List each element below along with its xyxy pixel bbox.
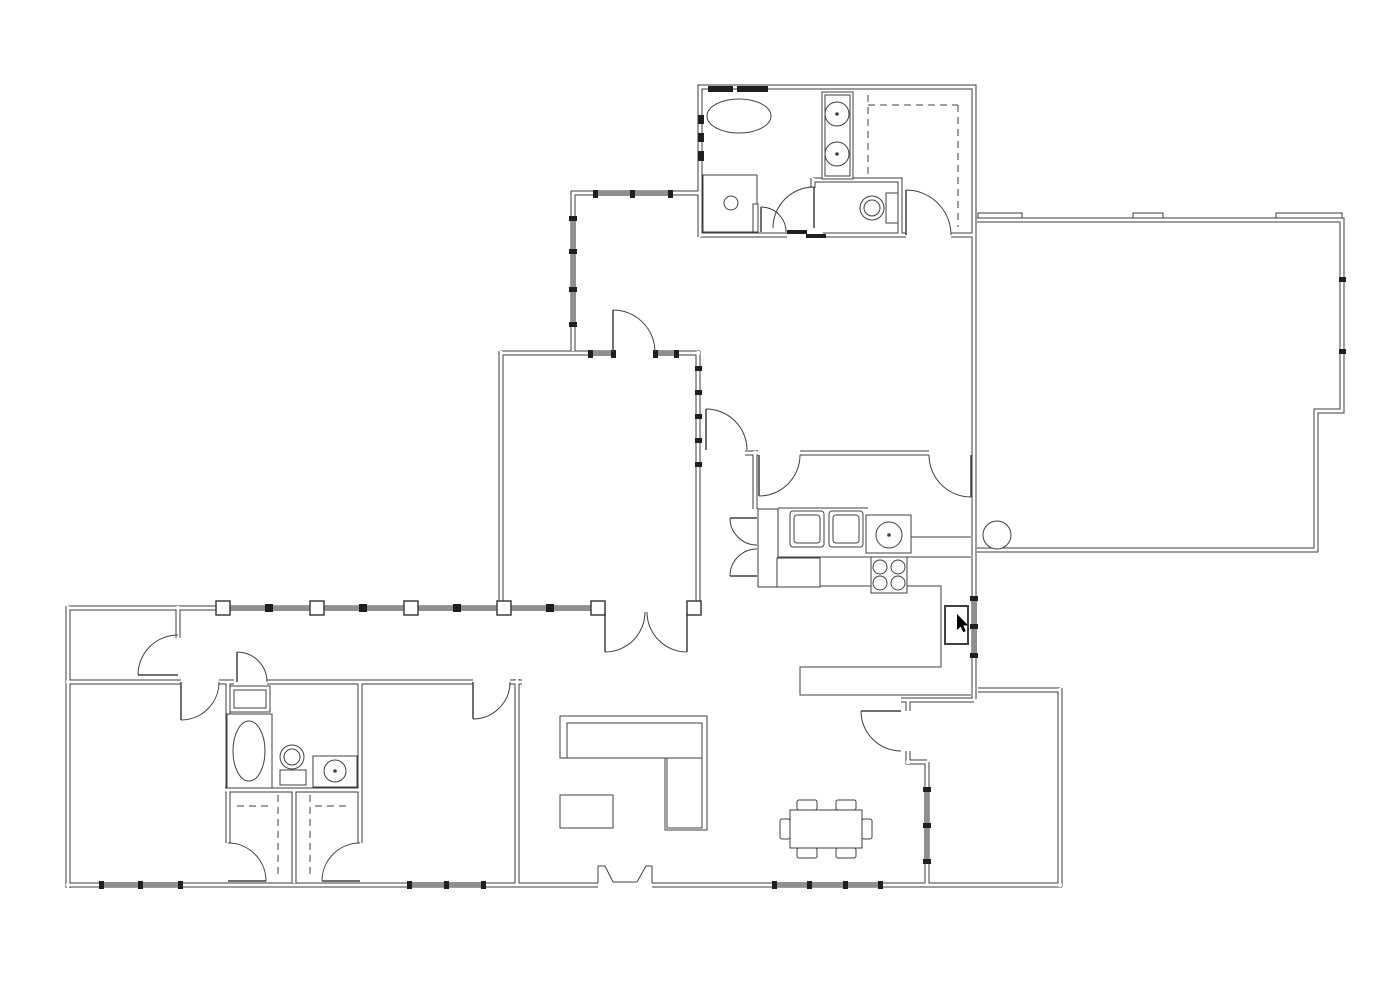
kitchen-sink-basin-2 <box>829 511 863 547</box>
window-post-3 <box>404 601 418 615</box>
sofa-seats-vertical <box>667 758 702 828</box>
master-north-window-tick-1 <box>593 190 598 198</box>
closet-east-wall-tick-1 <box>695 366 702 371</box>
window-post-1 <box>216 601 230 615</box>
door-small-room-arc <box>138 635 178 675</box>
floor-plan-canvas <box>0 0 1400 1000</box>
masterbath-west-window-pane-1 <box>698 115 704 124</box>
dining-south-window-1 <box>775 882 808 887</box>
master-north-window-2 <box>634 191 668 196</box>
door-closet-right-arc <box>322 843 360 881</box>
dining-chair-bottom-2 <box>836 848 856 858</box>
master-west-window-tick-4 <box>569 322 577 327</box>
fireplace-right-slant <box>637 866 646 882</box>
door-kitchen-right-arc <box>929 455 971 497</box>
door-entry-right-arc <box>647 612 687 652</box>
garage-east-wall-tick-1 <box>1339 277 1346 282</box>
master-toilet-tank <box>886 193 898 223</box>
dining-east-window-tick-3 <box>923 859 931 864</box>
coffee-table <box>560 795 613 828</box>
closet-east-wall-tick-3 <box>695 414 702 419</box>
dining-chair-bottom-1 <box>797 848 817 858</box>
master-bedroom-west-north-wall <box>573 193 700 351</box>
closet-north-tick-3 <box>653 350 658 358</box>
door-bedroom3-arc <box>473 682 510 719</box>
bedroom2-south-window-tick-1 <box>99 881 104 889</box>
kitchen-east-window-tick-1 <box>970 596 978 601</box>
hall-toilet-tank <box>280 770 306 785</box>
closet-north-tick-1 <box>588 350 593 358</box>
bedroom3-south-window-1 <box>410 882 445 887</box>
masterbath-bypass-door-panel-1 <box>787 230 807 234</box>
window-post-5 <box>591 601 605 615</box>
master-north-window-tick-2 <box>630 190 635 198</box>
garage-north-ledge-1 <box>978 213 1022 218</box>
kitchen-east-window-tick-3 <box>970 653 978 658</box>
sofa-seats-horizontal <box>567 723 702 758</box>
bedroom2-south-window-1 <box>102 882 139 887</box>
corridor-window-mullion-2 <box>359 604 367 612</box>
closet-east-wall-tick-2 <box>695 390 702 395</box>
garage-wall <box>977 220 1342 550</box>
masterbath-north-window-pane-1 <box>708 86 733 92</box>
bedroom2-south-window-2 <box>141 882 178 887</box>
door-kitchen-left-arc <box>759 455 800 496</box>
master-north-window-tick-3 <box>668 190 673 198</box>
master-sink-2-dot <box>835 152 839 156</box>
garage-water-heater <box>983 521 1011 549</box>
dining-chair-top-2 <box>836 800 856 810</box>
dining-south-window-2 <box>810 882 844 887</box>
masterbath-west-window-pane-2 <box>698 133 704 142</box>
window-post-6 <box>687 601 701 615</box>
master-west-window-3 <box>571 292 576 322</box>
closet-north-tick-4 <box>674 350 679 358</box>
stove-burner-3 <box>873 576 887 590</box>
garage-wall-core <box>977 220 1342 550</box>
door-closet-left-arc <box>228 843 266 881</box>
pantry-cabinet <box>758 509 778 587</box>
door-entry-left-arc <box>605 612 645 652</box>
stove-burner-2 <box>891 560 905 574</box>
bedroom3-south-window-2 <box>447 882 481 887</box>
dining-east-window-tick-1 <box>923 787 931 792</box>
door-toilet-room-arc <box>773 187 814 228</box>
stove-burner-4 <box>891 576 905 590</box>
floor-plan-drawing <box>0 0 1400 1000</box>
kitchen-sink-basin-1 <box>790 511 824 547</box>
bedroom3-south-window-tick-1 <box>407 881 412 889</box>
master-west-window-tick-3 <box>569 287 577 292</box>
bedroom2-south-window-tick-3 <box>178 881 183 889</box>
fireplace-left-slant <box>605 866 613 882</box>
bedroom2-south-window-tick-2 <box>138 881 143 889</box>
door-pantry-bottom-arc <box>730 549 757 576</box>
corridor-window-mullion-3 <box>453 604 461 612</box>
dining-chair-left <box>780 819 790 839</box>
door-bedroom2-arc <box>181 682 219 720</box>
dining-table <box>790 810 862 848</box>
dining-south-window-tick-3 <box>843 881 848 889</box>
dining-east-window-1 <box>924 791 929 823</box>
closet-sidelite-left <box>592 351 611 356</box>
kitchen-east-window-1 <box>972 600 977 624</box>
masterbath-bypass-door-panel-2 <box>806 234 826 238</box>
kitchen-east-window-tick-2 <box>970 624 978 629</box>
hall-tub-basin <box>233 721 265 781</box>
dining-south-window-tick-4 <box>878 881 883 889</box>
dining-chair-right <box>862 819 872 839</box>
door-master-closet-arc <box>613 310 655 352</box>
master-west-window-1 <box>571 221 576 249</box>
bedroom3-south-window-tick-3 <box>481 881 486 889</box>
window-post-2 <box>310 601 324 615</box>
closet-east-wall-tick-5 <box>695 462 702 467</box>
closet-sidelite-right <box>657 351 674 356</box>
corridor-window-mullion-1 <box>265 604 273 612</box>
masterbath-west-window-pane-3 <box>698 151 704 161</box>
dining-east-window-tick-2 <box>923 823 931 828</box>
kitchen-east-window-2 <box>972 628 977 653</box>
masterbath-north-window-pane-2 <box>737 86 768 92</box>
door-hall-bathroom-arc <box>237 652 267 682</box>
bedroom3-south-window-tick-2 <box>444 881 449 889</box>
door-den-arc <box>861 711 901 751</box>
door-pantry-top-arc <box>730 518 757 545</box>
hall-vanity-sink-dot <box>333 769 337 773</box>
garage-north-ledge-2 <box>1133 213 1163 218</box>
dining-chair-top-1 <box>797 800 817 810</box>
dining-south-window-tick-1 <box>772 881 777 889</box>
door-master-bathroom-arc <box>906 190 951 235</box>
dining-south-window-tick-2 <box>807 881 812 889</box>
window-post-4 <box>497 601 511 615</box>
corridor-window-mullion-4 <box>546 604 554 612</box>
stove-burner-1 <box>873 560 887 574</box>
dining-south-window-3 <box>846 882 878 887</box>
master-bedroom-west-north-wall-core <box>573 193 700 351</box>
door-master-hall-arc <box>706 409 747 450</box>
master-sink-1-dot <box>835 112 839 116</box>
master-west-window-tick-2 <box>569 249 577 254</box>
shower-glass-panel <box>753 204 758 232</box>
closet-east-wall-tick-4 <box>695 438 702 443</box>
shower-drain <box>724 196 738 210</box>
kitchen-round-sink-dot <box>887 533 891 537</box>
garage-north-ledge-3 <box>1276 213 1342 218</box>
kitchen-cabinet <box>777 558 820 587</box>
master-bathtub <box>707 99 771 133</box>
garage-east-wall-tick-2 <box>1339 349 1346 354</box>
master-west-window-2 <box>571 254 576 287</box>
dining-east-window-2 <box>924 827 929 859</box>
master-west-window-tick-1 <box>569 216 577 221</box>
master-north-window-1 <box>598 191 630 196</box>
